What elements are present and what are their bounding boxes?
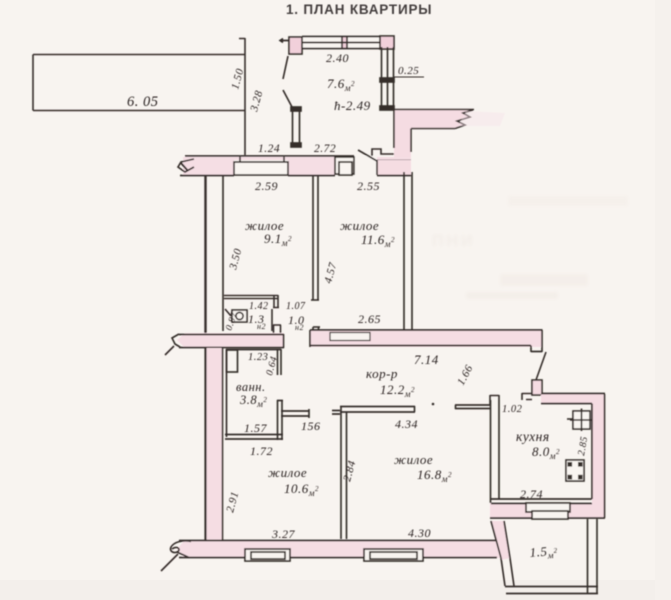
svg-text:1.42: 1.42 [249,301,269,312]
svg-text:жилое: жилое [340,218,379,233]
svg-text:2.59: 2.59 [255,179,278,193]
svg-text:156: 156 [301,419,321,433]
svg-text:1.07: 1.07 [286,301,306,312]
svg-text:2.74: 2.74 [520,487,543,501]
svg-text:2.65: 2.65 [358,312,381,326]
svg-text:1.24: 1.24 [258,143,280,155]
svg-text:7.14: 7.14 [414,352,439,367]
svg-text:2.72: 2.72 [314,143,336,155]
svg-text:кухня: кухня [516,429,550,444]
svg-text:0.25: 0.25 [398,65,419,77]
svg-text:4.34: 4.34 [395,417,418,431]
svg-text:1.23: 1.23 [248,352,268,363]
svg-text:жилое: жилое [268,465,307,480]
svg-text:кор-р: кор-р [366,366,398,381]
svg-text:ванн.: ванн. [236,380,266,394]
svg-text:ħ-2.49: ħ-2.49 [334,98,371,113]
svg-text:4.30: 4.30 [408,526,431,540]
svg-text:н2: н2 [295,323,304,332]
svg-text:1.02: 1.02 [502,404,523,415]
svg-text:н2: н2 [257,322,266,331]
svg-text:жилое: жилое [394,452,433,467]
svg-text:ПНИ: ПНИ [432,233,476,250]
svg-text:3.8м2: 3.8м2 [239,393,267,409]
svg-text:1.72: 1.72 [250,444,273,458]
svg-text:2.40: 2.40 [326,51,349,65]
svg-text:3.27: 3.27 [271,527,296,541]
svg-text:1.57: 1.57 [244,421,268,435]
svg-text:1. ПЛАН КВАРТИРЫ: 1. ПЛАН КВАРТИРЫ [286,2,432,17]
svg-text:2.55: 2.55 [357,179,380,193]
svg-text:6. 05: 6. 05 [127,94,159,110]
